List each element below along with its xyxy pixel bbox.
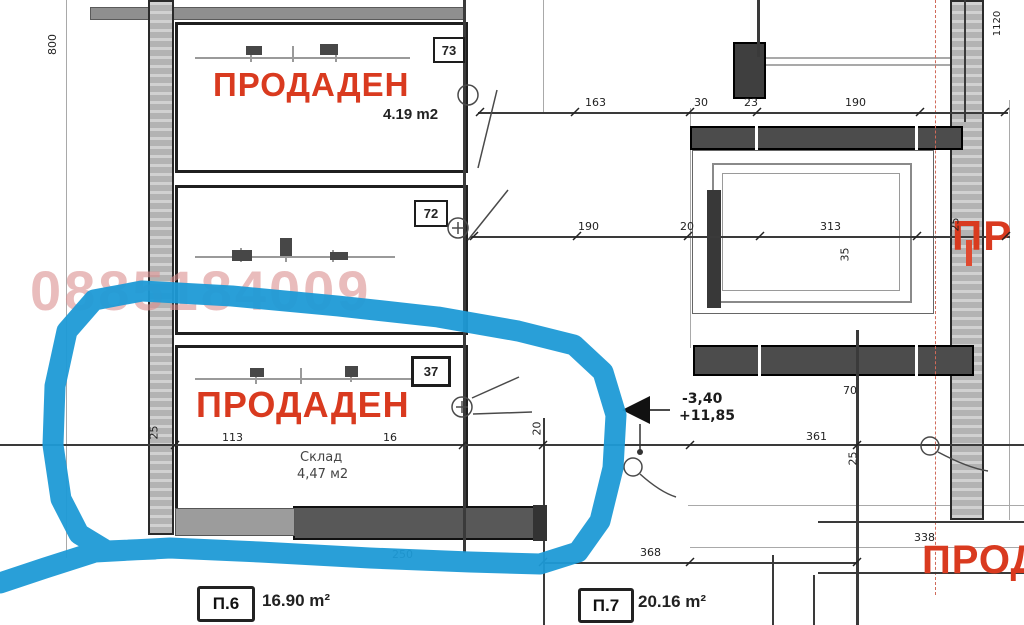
room-tag-label: 72 <box>424 206 438 221</box>
dim-mid-4: 35 <box>839 248 852 262</box>
dim-top-2: 30 <box>694 96 708 109</box>
dim-center-1: 25 <box>148 426 161 440</box>
dim-bottom-2: 368 <box>640 546 661 559</box>
dim-mid-2: 20 <box>680 220 694 233</box>
room-tag-73: 73 <box>433 37 465 63</box>
dim-top-1: 163 <box>585 96 606 109</box>
dim-center-2: 113 <box>222 431 243 444</box>
far-right-line <box>1009 100 1010 520</box>
balcony-wall-dark <box>293 506 537 540</box>
dim-line-bottom <box>543 562 858 564</box>
dim-line-middle <box>470 236 1010 238</box>
sold-label-top: ПРОДАДЕН <box>213 66 409 104</box>
fixture-blob <box>246 46 262 55</box>
level-value-lower: +11,85 <box>679 408 735 424</box>
fixture-blob <box>280 238 292 256</box>
fixture-blob <box>345 366 358 377</box>
room-area-top: 4.19 m2 <box>383 106 438 123</box>
dim-bottom-3: 338 <box>914 531 935 544</box>
dim-line-top <box>478 112 1008 114</box>
unit-tag-p6: П.6 <box>197 586 255 622</box>
top-right-line <box>964 0 966 122</box>
shaft-inner-rect-2 <box>722 173 900 291</box>
level-marker-icon <box>622 396 670 455</box>
sold-label-bottom-partial: ПРОД <box>922 538 1024 583</box>
unit-area-p7: 20.16 m² <box>638 592 706 612</box>
dim-center-4: 20 <box>531 422 544 436</box>
wall-joint <box>755 126 758 150</box>
room-tag-label: 73 <box>442 43 456 58</box>
level-value-upper: -3,40 <box>682 391 722 407</box>
room-tag-72: 72 <box>414 200 448 227</box>
balcony-wall-light <box>175 508 295 536</box>
red-dashed-axis <box>935 0 936 595</box>
dim-top-4: 190 <box>845 96 866 109</box>
dim-center-7: 25 <box>847 452 860 466</box>
lower-right-wall <box>693 345 974 376</box>
room-area-storage: 4,47 м2 <box>297 467 348 482</box>
top-wall-band <box>90 7 464 20</box>
watermark-phone: 0885184009 <box>30 258 371 323</box>
unit-tag-label: П.7 <box>593 596 619 616</box>
fixture-tick <box>292 46 294 62</box>
dim-top-3: 23 <box>744 96 758 109</box>
room-tag-37: 37 <box>411 356 451 387</box>
wall-joint <box>758 345 761 376</box>
fixture-line <box>195 378 425 380</box>
stair-edge-line-2 <box>762 64 962 66</box>
dim-left-vertical: 800 <box>46 34 59 55</box>
dim-topright-vertical: 1120 <box>992 11 1003 36</box>
door-hinge-icon <box>624 458 642 476</box>
dim-mid-1: 190 <box>578 220 599 233</box>
dim-bottom-1: 250 <box>392 548 413 561</box>
fixture-line <box>195 57 410 59</box>
wall-stub-top <box>733 42 766 99</box>
br-grid-line-1 <box>818 521 1024 523</box>
room-tag-label: 37 <box>424 364 438 379</box>
corridor-wall-line <box>463 0 466 553</box>
dim-center-5: 70 <box>843 384 857 397</box>
room-name-storage: Склад <box>300 450 342 465</box>
dim-center-3: 16 <box>383 431 397 444</box>
wall-joint <box>915 345 918 376</box>
shaft-door-stub <box>707 190 721 308</box>
sold-label-circled: ПРОДАДЕН <box>196 384 410 426</box>
fixture-blob <box>250 368 264 377</box>
wall-stub-bottom <box>533 505 547 541</box>
corridor-upper-line <box>543 0 544 112</box>
stair-edge-line-1 <box>762 57 962 59</box>
dim-center-6: 361 <box>806 430 827 443</box>
unit-tag-p7: П.7 <box>578 588 634 623</box>
center-axis-line <box>0 444 1024 446</box>
bottom-grid-line-a <box>772 555 774 625</box>
wall-joint <box>915 126 918 150</box>
unit-area-p6: 16.90 m² <box>262 591 330 611</box>
floor-plan-canvas: 73 72 37 ПРОДАДЕН 4.19 m2 ПРОДАДЕН Склад… <box>0 0 1024 625</box>
top-wall-stub-line <box>757 0 760 57</box>
bottom-grid-line-b <box>813 575 815 625</box>
right-partition-line <box>856 330 859 625</box>
fixture-blob <box>320 44 338 55</box>
shaft-top-wall <box>690 126 963 150</box>
door-hinge-icon <box>921 437 939 455</box>
dim-mid-5: 25 <box>949 218 962 232</box>
fixture-tick <box>300 368 302 384</box>
unit-tag-label: П.6 <box>213 594 239 614</box>
dim-mid-3: 313 <box>820 220 841 233</box>
